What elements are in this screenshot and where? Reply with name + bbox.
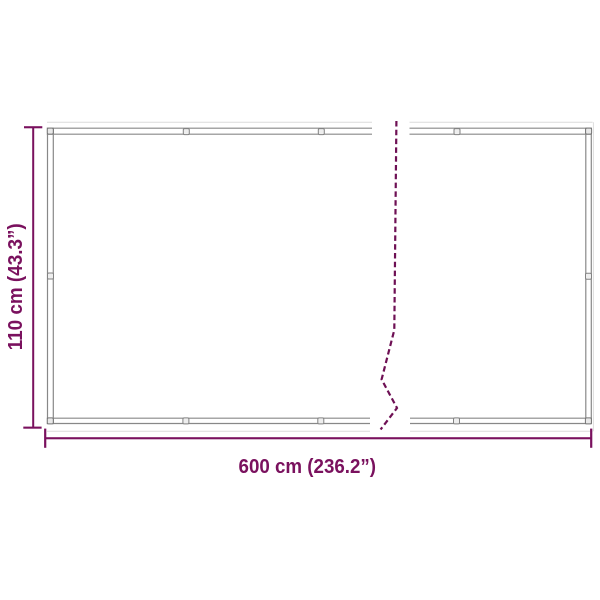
svg-text:600 cm (236.2”): 600 cm (236.2”) bbox=[239, 456, 377, 478]
svg-text:110 cm (43.3”): 110 cm (43.3”) bbox=[5, 223, 27, 350]
